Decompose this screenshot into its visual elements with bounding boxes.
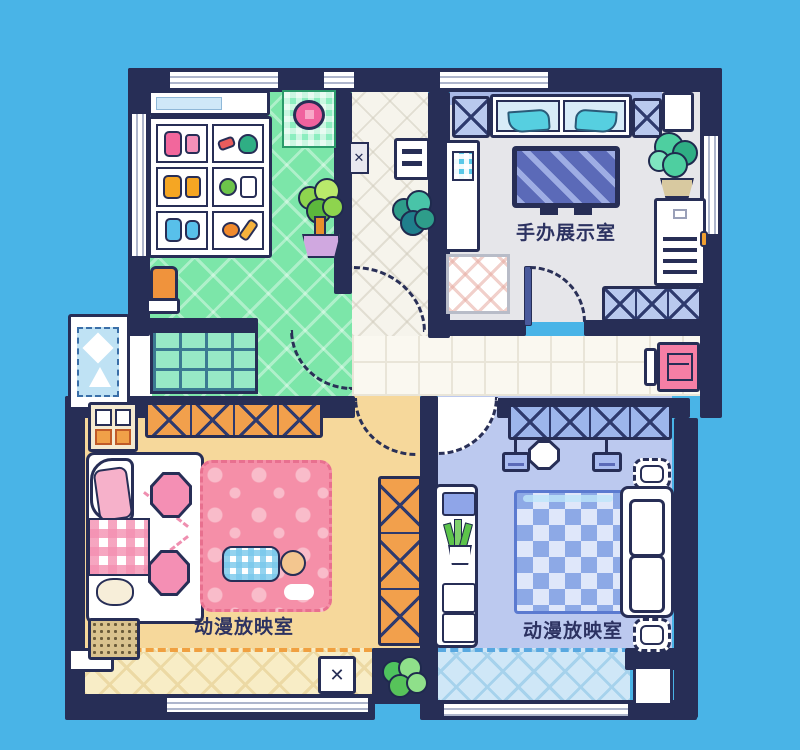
desk-cushion xyxy=(442,492,476,516)
x-shelf-blue xyxy=(508,404,672,440)
plaid-blanket xyxy=(88,518,150,576)
screening-room-left-label: 动漫放映室 xyxy=(176,612,312,639)
side-cabinet xyxy=(654,198,706,286)
tv-screen xyxy=(517,151,615,203)
display-case-figures xyxy=(490,94,632,138)
display-room-label: 手办展示室 xyxy=(500,218,632,245)
couch xyxy=(620,486,674,618)
pantry-shelf xyxy=(148,116,272,258)
shower-glass-grid xyxy=(150,330,258,394)
vending-screen xyxy=(452,151,474,181)
shelf-cell-pink-bottles xyxy=(156,124,208,163)
floorplan-canvas: ✕ 手办展示室 xyxy=(0,0,800,750)
bed-pillow-cream xyxy=(96,578,134,606)
tv xyxy=(512,146,620,208)
figure-icon xyxy=(574,109,617,134)
trash-bin-base xyxy=(146,298,180,314)
wall-display-bottom-left xyxy=(428,320,526,336)
corridor-plant xyxy=(390,188,436,244)
bay-window-glass xyxy=(77,327,119,397)
cabinet-vent xyxy=(673,209,687,219)
balcony-corner-tile xyxy=(633,666,673,706)
window-left xyxy=(130,112,148,258)
shoe-cabinet xyxy=(657,342,700,392)
window-top-1 xyxy=(168,70,280,90)
sink-basin xyxy=(156,97,222,110)
shelf-cell-jar xyxy=(212,167,264,206)
pouf-chair-2 xyxy=(148,550,190,596)
screening-right-balcony xyxy=(438,648,630,702)
tv-foot xyxy=(540,208,558,215)
vending-cabinet xyxy=(444,140,480,252)
shelf-cell-veggies xyxy=(212,124,264,163)
cabinet-knob xyxy=(700,231,708,247)
hanging-lamp-2 xyxy=(592,452,622,472)
cabinet-shelves xyxy=(663,237,697,279)
window-bottom-left xyxy=(165,696,370,714)
desk-plant-pot xyxy=(448,545,472,565)
stove-pot xyxy=(293,100,325,130)
window-top-2 xyxy=(322,70,356,90)
cloud-puff xyxy=(284,584,314,600)
doormat xyxy=(88,618,140,660)
window-top-3 xyxy=(438,70,550,90)
figure-icon xyxy=(507,109,550,134)
desk-unit xyxy=(434,484,478,648)
desk-drawer xyxy=(442,583,476,613)
shelf-cell-blue-bottles xyxy=(156,211,208,250)
blue-rug xyxy=(514,490,632,614)
bay-glass-tree xyxy=(89,367,111,387)
x-shelf-vertical xyxy=(378,476,422,646)
bay-glass-diamond xyxy=(82,332,113,363)
sink-counter xyxy=(148,90,270,116)
figure-case-2 xyxy=(563,100,627,132)
balcony-planter xyxy=(380,656,432,700)
shelf-cell-carrot xyxy=(212,211,264,250)
display-x-cabinet-left xyxy=(452,96,490,138)
window-bottom-right xyxy=(442,702,630,718)
wall-cabinet xyxy=(88,402,138,452)
display-room-plant xyxy=(646,130,702,200)
bed-pillow-pink xyxy=(93,466,134,522)
display-corner-box xyxy=(662,92,694,132)
wall-plaque-x-icon: ✕ xyxy=(349,142,369,174)
sleeping-person-head xyxy=(280,550,306,576)
floor-hatch-x-icon: ✕ xyxy=(318,656,356,694)
tv-foot xyxy=(574,208,592,215)
figure-case-1 xyxy=(496,100,560,132)
desk-drawer xyxy=(442,613,476,643)
screening-room-right-label: 动漫放映室 xyxy=(506,616,640,643)
corridor-wall-shelf xyxy=(394,138,430,180)
wall-right-lower xyxy=(674,418,698,718)
trash-bin xyxy=(150,266,178,302)
x-shelf-top xyxy=(145,402,323,438)
hanging-lamp-1 xyxy=(502,452,530,472)
display-x-shelf-bottom xyxy=(602,286,702,322)
display-room-rug xyxy=(446,254,510,314)
sleeping-person-blanket xyxy=(222,546,280,582)
hallway-side-panel xyxy=(644,348,657,386)
kitchen-plant xyxy=(294,178,346,258)
bay-window-frame xyxy=(68,314,130,410)
shelf-cell-orange-jars xyxy=(156,167,208,206)
